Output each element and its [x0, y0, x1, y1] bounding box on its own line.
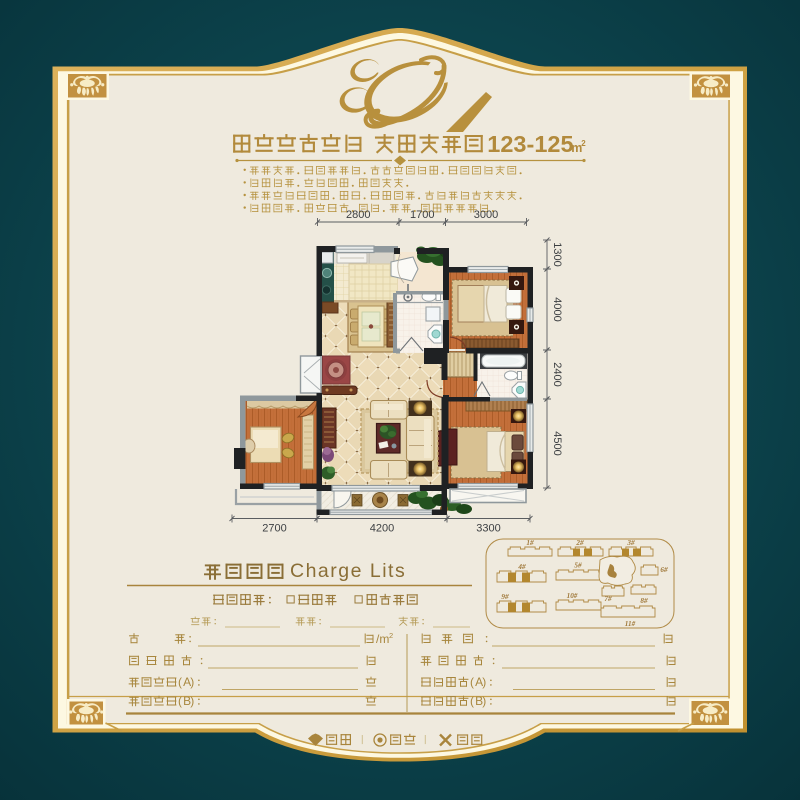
svg-text:2: 2	[581, 139, 586, 148]
svg-text:9#: 9#	[501, 593, 509, 601]
svg-text:7#: 7#	[604, 595, 612, 603]
svg-text:): )	[190, 694, 194, 708]
svg-text:3#: 3#	[626, 539, 635, 547]
svg-text:4000: 4000	[551, 297, 563, 321]
svg-text:1700: 1700	[410, 209, 434, 221]
svg-text:123-125: 123-125	[487, 131, 573, 157]
svg-text:2700: 2700	[262, 523, 286, 535]
svg-text:1#: 1#	[526, 539, 534, 547]
svg-text:(: (	[178, 694, 182, 708]
svg-text:8#: 8#	[640, 597, 648, 605]
svg-text:(: (	[470, 694, 474, 708]
svg-text:2#: 2#	[575, 539, 584, 547]
svg-text:(: (	[178, 675, 182, 689]
svg-text:): )	[482, 675, 486, 689]
svg-text:/m: /m	[376, 632, 389, 646]
svg-text:2: 2	[389, 631, 393, 640]
svg-text:5#: 5#	[574, 562, 582, 570]
svg-text:4200: 4200	[370, 523, 394, 535]
svg-text:2400: 2400	[551, 362, 563, 386]
svg-text:): )	[482, 694, 486, 708]
svg-text:3000: 3000	[474, 209, 498, 221]
svg-text:(: (	[470, 675, 474, 689]
svg-text:Charge Lits: Charge Lits	[290, 560, 406, 582]
svg-text:3300: 3300	[476, 523, 500, 535]
svg-text:10#: 10#	[567, 592, 578, 600]
svg-text:2800: 2800	[346, 209, 370, 221]
svg-text:): )	[190, 675, 194, 689]
svg-text:4500: 4500	[551, 431, 563, 455]
svg-text:6#: 6#	[660, 566, 668, 574]
svg-text:11#: 11#	[625, 620, 636, 628]
svg-text:4#: 4#	[517, 563, 526, 571]
svg-text:1300: 1300	[551, 242, 563, 266]
